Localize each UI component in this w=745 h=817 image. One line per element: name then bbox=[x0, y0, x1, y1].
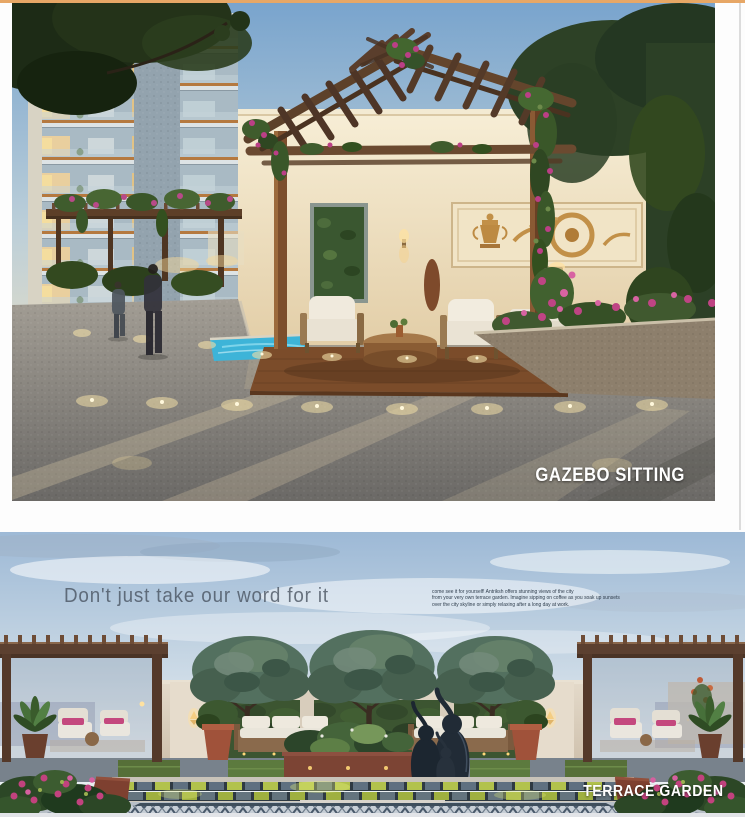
terrace-scene bbox=[0, 532, 745, 813]
footer-strip bbox=[0, 813, 745, 817]
terrace-caption: TERRACE GARDEN bbox=[584, 783, 724, 801]
pergola-left bbox=[0, 635, 168, 762]
terrace-body-line: over the city skyline or simply relaxing… bbox=[432, 602, 620, 608]
gazebo-scene bbox=[12, 3, 715, 501]
terrace-heading: Don't just take our word for it bbox=[64, 585, 329, 608]
pergola-right bbox=[577, 635, 745, 762]
terrace-garden-image: Don't just take our word for it come see… bbox=[0, 532, 745, 813]
gazebo-caption: GAZEBO SITTING bbox=[535, 465, 685, 487]
brochure-page: GAZEBO SITTING bbox=[0, 0, 745, 817]
terrace-body-line: from your very own terrace garden. Imagi… bbox=[432, 595, 620, 601]
terrace-body-text: come see it for yourself! Antriksh offer… bbox=[432, 589, 620, 608]
page-edge-line bbox=[739, 3, 741, 530]
gazebo-sitting-image: GAZEBO SITTING bbox=[12, 3, 715, 501]
